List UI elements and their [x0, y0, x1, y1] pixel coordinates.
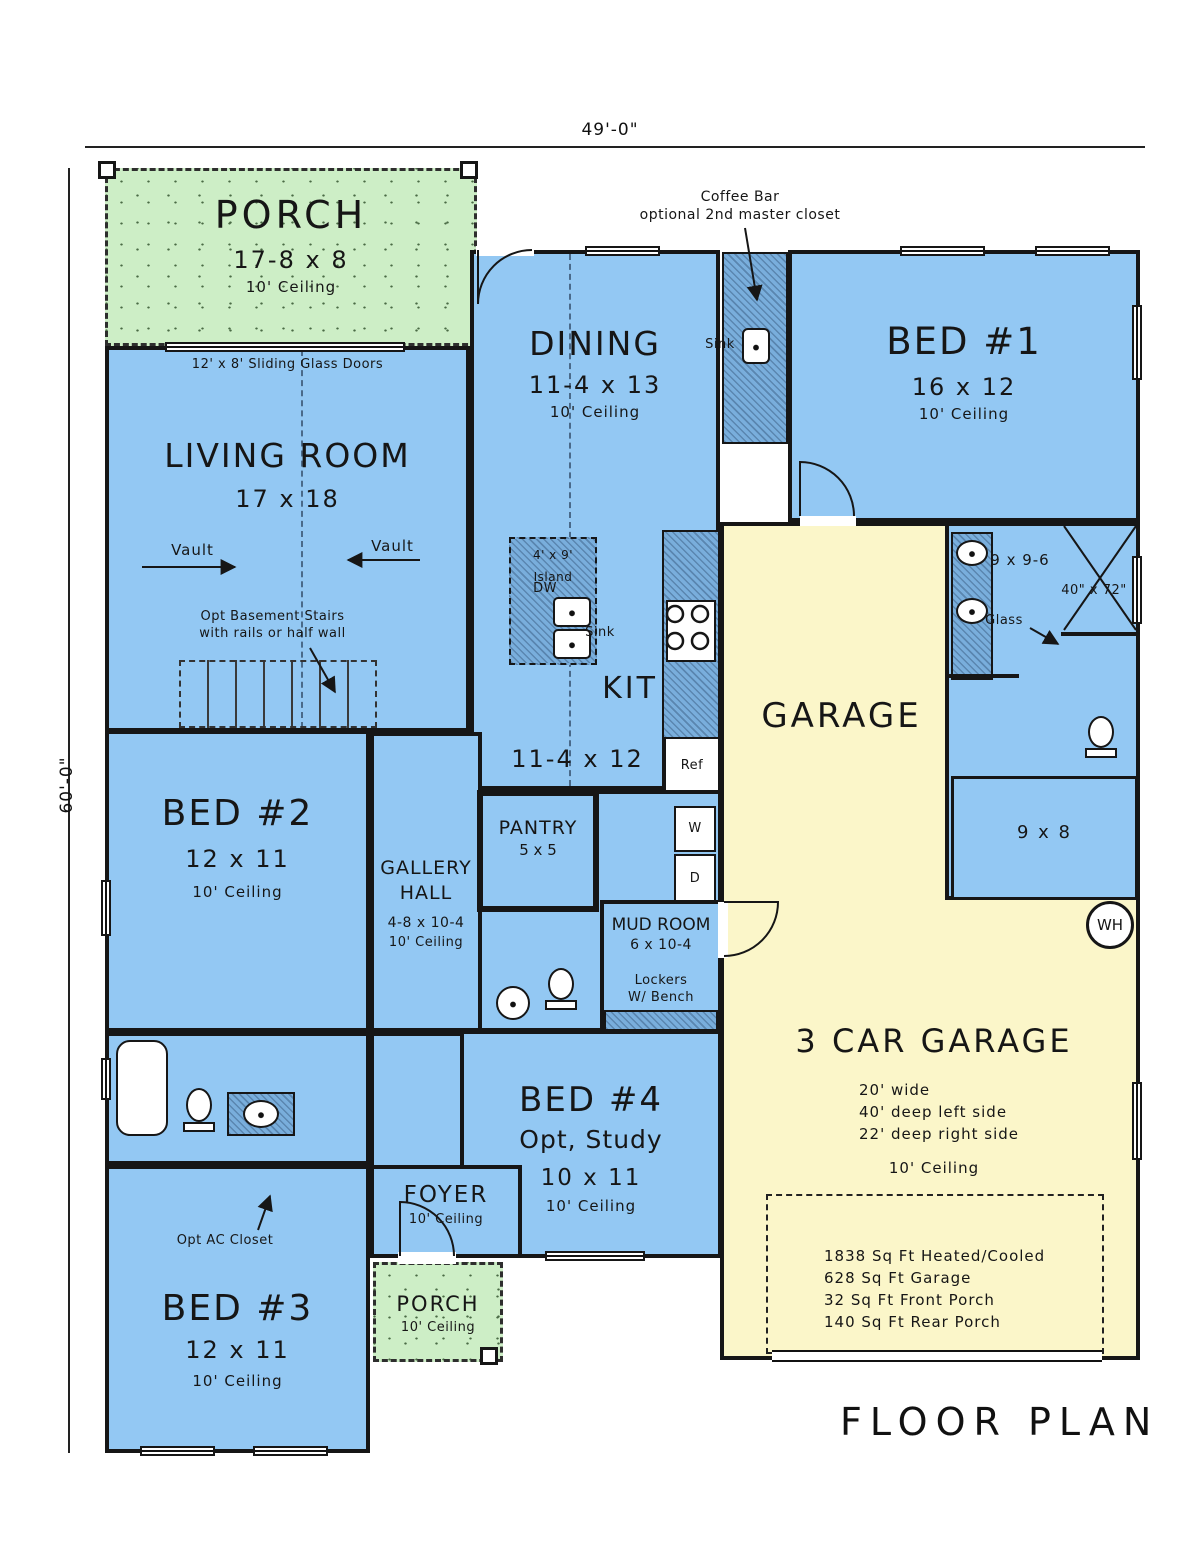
window-icon [140, 1446, 215, 1456]
area-summary-line4: 140 Sq Ft Rear Porch [824, 1314, 1001, 1331]
window-icon [165, 342, 405, 352]
toilet-bowl-icon [1088, 716, 1114, 748]
garage-ceiling: 10' Ceiling [854, 1160, 1014, 1177]
room-size: 12 x 11 [109, 846, 366, 872]
room-ceiling: 10' Ceiling [109, 884, 366, 901]
room-name: BED #3 [109, 1289, 366, 1329]
glass-label: Glass [969, 614, 1039, 628]
room-name: MUD ROOM [604, 916, 718, 935]
master-closet: 9 x 8 [951, 776, 1138, 900]
room-name: PORCH [376, 1293, 500, 1316]
room-porch-bottom: PORCH 10' Ceiling [373, 1262, 503, 1362]
window-icon [1132, 556, 1142, 624]
room-size: 16 x 12 [792, 374, 1136, 400]
room-name: LIVING ROOM [109, 438, 466, 474]
wall-segment [1061, 632, 1140, 636]
stove-icon [666, 600, 716, 662]
area-summary-line3: 32 Sq Ft Front Porch [824, 1292, 995, 1309]
room-name: PORCH [108, 195, 474, 237]
room-bath-mid [105, 1032, 370, 1165]
washer-label: W [676, 822, 714, 836]
room-ceiling: 10' Ceiling [792, 406, 1136, 423]
window-icon [101, 1058, 111, 1100]
porch-post-icon [98, 161, 116, 179]
room-ceiling: 10' Ceiling [374, 936, 478, 950]
kitchen-sink-icon [553, 597, 591, 627]
room-living: 12' x 8' Sliding Glass Doors LIVING ROOM… [105, 346, 470, 732]
toilet-bowl-icon [186, 1088, 212, 1122]
room-name: DINING [474, 326, 716, 362]
window-icon [1132, 1082, 1142, 1160]
closet-size: 9 x 8 [954, 823, 1135, 843]
garage-note-right: 22' deep right side [859, 1126, 1019, 1143]
window-icon [900, 246, 985, 256]
room-size: 6 x 10-4 [604, 938, 718, 953]
wall-segment [949, 674, 1019, 678]
dryer-icon: D [674, 854, 716, 904]
top-dimension-line [85, 146, 1145, 148]
bathtub-icon [116, 1040, 168, 1136]
stairs-note-line1: Opt Basement Stairs [79, 610, 466, 624]
garage-note-width: 20' wide [859, 1082, 930, 1099]
fridge-label: Ref [666, 759, 718, 773]
basement-stairs-icon [179, 660, 377, 728]
window-icon [545, 1251, 645, 1261]
room-name: BED #2 [109, 794, 366, 834]
room-bed1: BED #1 16 x 12 10' Ceiling [788, 250, 1140, 522]
dryer-label: D [676, 872, 714, 886]
door-opening [476, 246, 534, 256]
window-icon [1035, 246, 1110, 256]
powder-sink-icon [496, 986, 530, 1020]
window-icon [253, 1446, 328, 1456]
lockers-line1: Lockers [604, 974, 718, 988]
room-size: 5 x 5 [483, 842, 593, 859]
room-master-bath: 9 x 9-6 40" x 72" Glass 9 x 8 [945, 522, 1140, 900]
vault-note: Vault [319, 538, 466, 555]
sliding-doors-note: 12' x 8' Sliding Glass Doors [109, 358, 466, 372]
room-ceiling: 10' Ceiling [376, 1321, 500, 1335]
toilet-bowl-icon [548, 968, 574, 1000]
window-icon [585, 246, 660, 256]
room-bed2: BED #2 12 x 11 10' Ceiling [105, 730, 370, 1032]
room-ceiling: 10' Ceiling [474, 404, 716, 421]
room-name: PANTRY [483, 818, 593, 839]
fridge-icon: Ref [664, 737, 720, 795]
toilet-tank-icon [1085, 748, 1117, 758]
room-ceiling: 10' Ceiling [374, 1213, 518, 1227]
room-name: FOYER [374, 1183, 518, 1208]
left-dimension-label: 60'-0" [57, 730, 77, 840]
stairs-note-line2: with rails or half wall [79, 627, 466, 641]
room-size: 17-8 x 8 [108, 247, 474, 273]
water-heater-icon: WH [1086, 901, 1134, 949]
porch-post-icon [460, 161, 478, 179]
bath-size: 9 x 9-6 [904, 552, 1136, 569]
door-opening [800, 516, 856, 526]
garage-note-left: 40' deep left side [859, 1104, 1007, 1121]
door-opening [398, 1252, 456, 1264]
room-size: 4-8 x 10-4 [374, 916, 478, 931]
room-pantry: PANTRY 5 x 5 [477, 790, 599, 912]
room-size: 17 x 18 [109, 486, 466, 512]
room-foyer: FOYER 10' Ceiling [370, 1165, 522, 1258]
room-porch-top: PORCH 17-8 x 8 10' Ceiling [105, 168, 477, 346]
kitchen-island: 4' x 9' Island [509, 537, 597, 665]
room-bed3: BED #3 12 x 11 10' Ceiling [105, 1165, 370, 1453]
room-name: BED #1 [792, 322, 1136, 363]
room-ceiling: 10' Ceiling [109, 1373, 366, 1390]
room-gallery-hall: GALLERY HALL 4-8 x 10-4 10' Ceiling [370, 732, 482, 1032]
lockers-line2: W/ Bench [604, 991, 718, 1005]
island-label-line1: 4' x 9' [511, 549, 595, 562]
top-dimension-label: 49'-0" [520, 120, 700, 140]
plan-title: FLOOR PLAN [840, 1400, 1159, 1444]
washer-icon: W [674, 806, 716, 852]
room-name: BED #4 [464, 1082, 718, 1119]
coffee-note-line1: Coffee Bar [660, 190, 820, 205]
shower-size: 40" x 72" [1044, 584, 1144, 598]
room-alt: Opt, Study [464, 1126, 718, 1154]
bath-sink-icon [243, 1100, 279, 1128]
room-size: 11-4 x 13 [474, 372, 716, 398]
window-icon [101, 880, 111, 936]
window-icon [1132, 305, 1142, 380]
bench-icon [604, 1010, 718, 1031]
coffee-sink-label: Sink [700, 338, 740, 352]
area-summary-line1: 1838 Sq Ft Heated/Cooled [824, 1248, 1045, 1265]
toilet-tank-icon [545, 1000, 577, 1010]
area-summary-line2: 628 Sq Ft Garage [824, 1270, 971, 1287]
water-heater-label: WH [1089, 917, 1131, 934]
coffee-note-line2: optional 2nd master closet [630, 208, 850, 223]
room-dining-kitchen: DINING 11-4 x 13 10' Ceiling 4' x 9' Isl… [470, 250, 720, 790]
room-name-line2: HALL [374, 883, 478, 904]
room-ceiling: 10' Ceiling [108, 279, 474, 296]
door-opening [718, 902, 728, 958]
room-mud: MUD ROOM 6 x 10-4 Lockers W/ Bench [600, 900, 722, 1035]
room-name: GARAGE [734, 698, 949, 735]
coffee-sink-icon [742, 328, 770, 364]
ac-closet-note: Opt AC Closet [155, 1234, 295, 1248]
floor-plan-canvas: 49'-0" 60'-0" PORCH 17-8 x 8 10' Ceiling… [0, 0, 1200, 1553]
room-name-line1: GALLERY [374, 858, 478, 879]
garage-door-opening [772, 1350, 1102, 1362]
garage-title: 3 CAR GARAGE [744, 1024, 1124, 1059]
room-size: 12 x 11 [109, 1337, 366, 1363]
toilet-tank-icon [183, 1122, 215, 1132]
porch-post-icon [480, 1347, 498, 1365]
